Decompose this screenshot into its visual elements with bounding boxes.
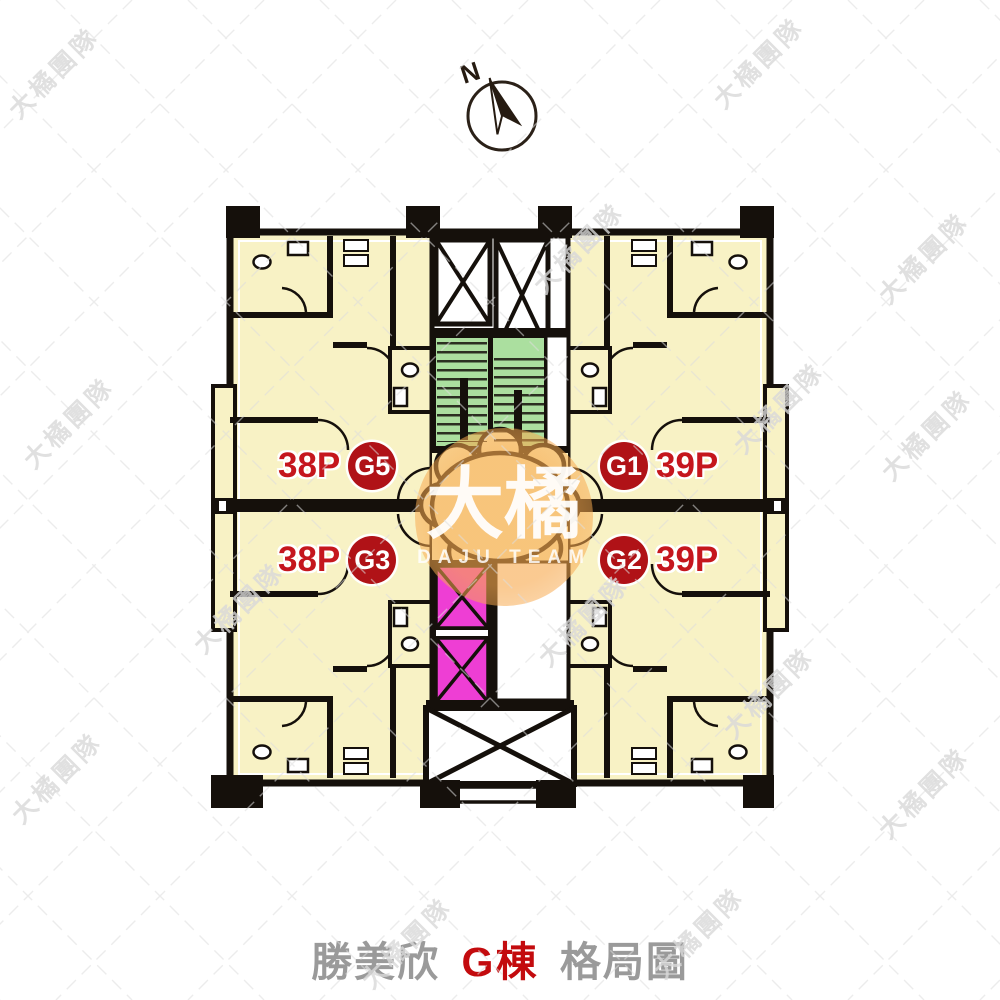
elevator-corridor xyxy=(496,562,568,700)
unit-badge-g1: G1 xyxy=(600,442,648,490)
title-project: 勝美欣 xyxy=(311,939,440,985)
stair-treads-left xyxy=(437,342,487,442)
stair-treads-right xyxy=(494,358,544,444)
elevator-bank xyxy=(430,560,568,710)
unit-badge-g5: G5 xyxy=(348,442,396,490)
bottom-shaft xyxy=(426,708,574,784)
title-suffix: 格局圖 xyxy=(560,939,689,985)
unit-label-g3: 38P G3 xyxy=(278,535,396,585)
unit-badge-g2: G2 xyxy=(600,536,648,584)
unit-size-g5: 38P xyxy=(278,446,340,486)
title-building: G棟 xyxy=(462,939,539,985)
unit-size-g3: 38P xyxy=(278,540,340,580)
north-compass-icon: N xyxy=(440,50,560,170)
unit-label-g5: 38P G5 xyxy=(278,441,396,491)
elevator-car-2 xyxy=(436,638,488,702)
unit-size-g1: 39P xyxy=(656,446,718,486)
floorplan-page: 大橘 DAJU TEAM 38P G5 G1 39P 38P G3 G2 39P… xyxy=(0,0,1000,1000)
unit-label-g1: G1 39P xyxy=(600,441,718,491)
unit-size-g2: 39P xyxy=(656,540,718,580)
unit-label-g2: G2 39P xyxy=(600,535,718,585)
compass-north-label: N xyxy=(457,55,484,89)
unit-badge-g3: G3 xyxy=(348,536,396,584)
page-title: 勝美欣 G棟 格局圖 xyxy=(0,928,1000,988)
vent-shaft-left xyxy=(436,240,490,324)
lobby xyxy=(421,429,579,573)
elevator-car-1 xyxy=(436,566,488,628)
core xyxy=(421,236,579,802)
